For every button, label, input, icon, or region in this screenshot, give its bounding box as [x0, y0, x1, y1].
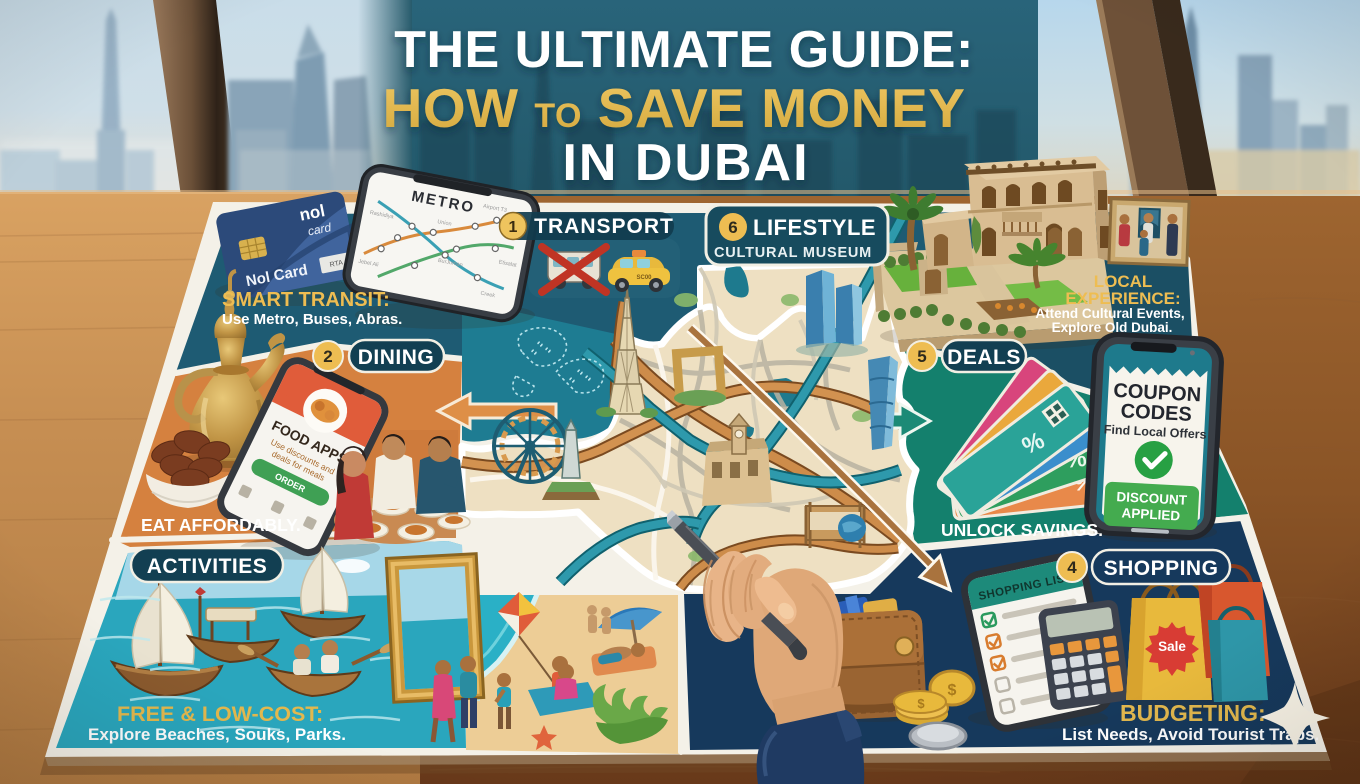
svg-text:SHOPPING: SHOPPING	[1104, 557, 1219, 580]
svg-text:DEALS: DEALS	[947, 346, 1021, 369]
svg-text:DINING: DINING	[358, 346, 435, 369]
svg-text:SMART TRANSIT:: SMART TRANSIT:	[222, 289, 390, 311]
svg-text:HOW TO SAVE MONEY: HOW TO SAVE MONEY	[383, 77, 966, 139]
svg-text:1: 1	[509, 219, 518, 236]
svg-text:Use Metro, Buses, Abras.: Use Metro, Buses, Abras.	[222, 311, 402, 328]
svg-text:THE ULTIMATE GUIDE:: THE ULTIMATE GUIDE:	[394, 21, 974, 79]
svg-text:TRANSPORT: TRANSPORT	[534, 215, 674, 238]
svg-text:5: 5	[917, 347, 926, 366]
svg-text:ACTIVITIES: ACTIVITIES	[147, 555, 268, 578]
svg-text:$: $	[948, 682, 957, 699]
svg-text:FREE & LOW-COST:: FREE & LOW-COST:	[117, 702, 323, 726]
svg-text:Explore Old Dubai.: Explore Old Dubai.	[1052, 320, 1173, 335]
svg-text:CODES: CODES	[1120, 400, 1192, 426]
svg-text:APPLIED: APPLIED	[1121, 505, 1180, 523]
svg-text:$: $	[917, 696, 925, 711]
svg-text:Explore Beaches, Souks, Parks.: Explore Beaches, Souks, Parks.	[88, 725, 346, 744]
svg-text:EAT AFFORDABLY.: EAT AFFORDABLY.	[141, 515, 301, 535]
svg-text:IN DUBAI: IN DUBAI	[562, 134, 809, 192]
svg-text:LIFESTYLE: LIFESTYLE	[753, 215, 876, 240]
svg-text:CULTURAL MUSEUM: CULTURAL MUSEUM	[714, 245, 872, 261]
svg-text:4: 4	[1067, 558, 1077, 577]
svg-text:BUDGETING:: BUDGETING:	[1120, 700, 1266, 726]
svg-text:2: 2	[323, 347, 332, 366]
svg-text:6: 6	[728, 218, 737, 237]
svg-text:SC00: SC00	[636, 275, 652, 281]
svg-text:List Needs, Avoid Tourist Trap: List Needs, Avoid Tourist Traps.	[1062, 725, 1319, 744]
svg-text:UNLOCK SAVINGS.: UNLOCK SAVINGS.	[941, 520, 1103, 540]
svg-text:Attend Cultural Events,: Attend Cultural Events,	[1035, 306, 1184, 321]
svg-text:Sale: Sale	[1158, 639, 1186, 654]
